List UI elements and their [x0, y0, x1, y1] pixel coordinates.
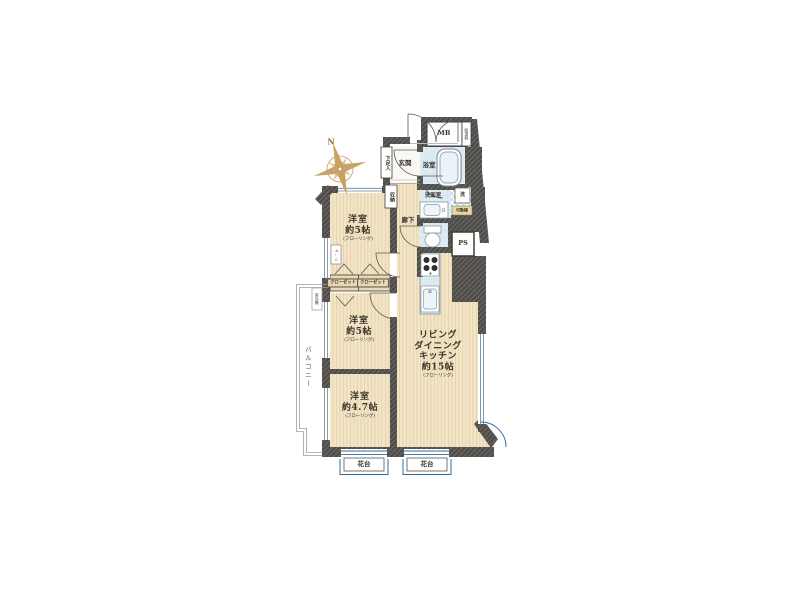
bedroom2-name: 洋室 [344, 316, 374, 327]
flower-stand-right-label: 花台 [421, 461, 434, 469]
bedroom3-size: 約4.7帖 [342, 403, 378, 414]
balcony-label: バルコニー [303, 346, 311, 389]
bedroom1-name: 洋室 [343, 215, 373, 226]
meter-box-label: MB [438, 130, 451, 138]
bedroom1-note: (フローリング) [343, 237, 373, 242]
washbasin-icon [420, 202, 448, 218]
air-conditioner-label: A・C [334, 248, 338, 262]
entrance-label: 玄関 [399, 160, 412, 168]
bedroom2-size: 約5帖 [344, 327, 374, 338]
closet-left-label: クローゼット [327, 278, 359, 287]
outdoor-unit-label: 室外機 [315, 293, 319, 304]
bathroom-label: 浴室 [423, 162, 436, 170]
bedroom1-size: 約5帖 [343, 226, 373, 237]
kitchen-sink-icon [421, 286, 439, 312]
washroom-label: 洗面室 [425, 193, 441, 199]
water-heater-label: 給湯器 [464, 128, 468, 139]
storage-label: 収納 [388, 192, 394, 202]
closet-right-label: クローゼット [357, 278, 389, 287]
toilet-icon [424, 226, 441, 247]
stove-icon [421, 254, 439, 276]
ldk-name2: ダイニング [414, 341, 462, 352]
bedroom3-label: 洋室 約4.7帖 (フローリング) [342, 392, 378, 420]
flower-stand-left-label: 花台 [358, 461, 371, 469]
floorplan-graphic [0, 0, 800, 600]
ldk-label: リビング ダイニング キッチン 約15帖 (フローリング) [414, 331, 462, 380]
washer-label: 洗 [460, 193, 465, 199]
ldk-note: (フローリング) [414, 374, 462, 379]
bedroom1-label: 洋室 約5帖 (フローリング) [343, 215, 373, 243]
ldk-name1: リビング [414, 331, 462, 342]
bathtub-icon [437, 149, 461, 186]
movable-shelf-label: 可動棚 [456, 208, 468, 213]
hallway-label: 廊下 [402, 217, 415, 225]
bedroom2-label: 洋室 約5帖 (フローリング) [344, 316, 374, 344]
ldk-name3: キッチン [414, 352, 462, 363]
bedroom3-name: 洋室 [342, 392, 378, 403]
bedroom3-note: (フローリング) [342, 414, 378, 419]
shoe-cabinet-label: 下足入 [384, 155, 390, 170]
bedroom2-note: (フローリング) [344, 338, 374, 343]
pipe-space-label: PS [458, 240, 468, 248]
floorplan-canvas: N 洋室 約5帖 (フローリング) 洋室 約5帖 (フローリング) 洋室 約4.… [0, 0, 800, 600]
compass-north-label: N [327, 137, 334, 146]
ldk-size: 約15帖 [414, 362, 462, 373]
